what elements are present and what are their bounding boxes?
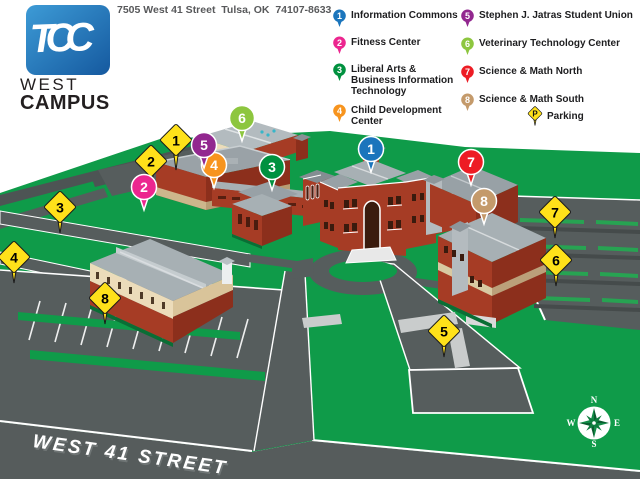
svg-text:P: P xyxy=(532,110,538,119)
svg-text:1: 1 xyxy=(367,141,375,157)
svg-text:6: 6 xyxy=(238,110,246,126)
campus-map-page: WEST 41 STREET WEST 41 STREET N E xyxy=(0,0,640,479)
legend-pin-2-icon: 2 xyxy=(332,36,347,56)
svg-text:4: 4 xyxy=(337,106,342,116)
svg-text:7: 7 xyxy=(467,154,475,170)
tcc-logo: TCC xyxy=(26,5,110,75)
legend-label: Information Commons xyxy=(351,9,462,21)
compass-e: E xyxy=(614,418,620,428)
legend-item-information-commons: 1 Information Commons xyxy=(332,9,462,29)
legend-label: Veterinary Technology Center xyxy=(479,37,638,49)
legend-pin-1-icon: 1 xyxy=(332,9,347,29)
legend-label: Science & Math South xyxy=(479,93,638,105)
legend-column-2: 5 Stephen J. Jatras Student Union 6 Vete… xyxy=(460,9,638,121)
legend-label: Liberal Arts & Business Information Tech… xyxy=(351,63,462,97)
svg-text:1: 1 xyxy=(337,11,342,21)
legend-item-child-development: 4 Child Development Center xyxy=(332,104,462,127)
compass-n: N xyxy=(591,395,598,405)
svg-text:7: 7 xyxy=(551,205,559,221)
svg-text:2: 2 xyxy=(337,38,342,48)
svg-text:8: 8 xyxy=(465,95,470,105)
campus-title: WEST CAMPUS xyxy=(20,76,110,113)
legend-item-veterinary-technology: 6 Veterinary Technology Center xyxy=(460,37,638,57)
campus-address: 7505 West 41 Street Tulsa, OK 74107-8633 xyxy=(117,4,331,16)
legend-label: Parking xyxy=(547,111,584,122)
legend-label: Fitness Center xyxy=(351,36,462,48)
svg-text:4: 4 xyxy=(10,250,18,266)
svg-text:7: 7 xyxy=(465,67,470,77)
legend-parking-icon: P xyxy=(527,106,543,126)
legend-item-parking: P Parking xyxy=(527,106,584,126)
svg-text:8: 8 xyxy=(480,193,488,209)
svg-text:6: 6 xyxy=(552,253,560,269)
svg-text:5: 5 xyxy=(465,11,470,21)
svg-text:2: 2 xyxy=(147,154,155,170)
legend-pin-4-icon: 4 xyxy=(332,104,347,124)
campus-word-campus: CAMPUS xyxy=(20,93,110,113)
legend-label: Stephen J. Jatras Student Union xyxy=(479,9,638,21)
svg-text:8: 8 xyxy=(101,291,109,307)
compass-s: S xyxy=(591,439,596,449)
legend-pin-3-icon: 3 xyxy=(332,63,347,83)
svg-text:6: 6 xyxy=(465,39,470,49)
legend-item-liberal-arts: 3 Liberal Arts & Business Information Te… xyxy=(332,63,462,97)
svg-text:5: 5 xyxy=(440,324,448,340)
campus-word-west: WEST xyxy=(20,76,110,93)
legend-item-fitness-center: 2 Fitness Center xyxy=(332,36,462,56)
svg-text:3: 3 xyxy=(268,159,276,175)
legend-pin-5-icon: 5 xyxy=(460,9,475,29)
compass-w: W xyxy=(567,418,576,428)
legend-label: Child Development Center xyxy=(351,104,462,127)
legend-column-1: 1 Information Commons 2 Fitness Center 3… xyxy=(332,9,462,134)
legend-label: Science & Math North xyxy=(479,65,638,77)
legend-item-student-union: 5 Stephen J. Jatras Student Union xyxy=(460,9,638,29)
svg-text:1: 1 xyxy=(172,133,180,149)
legend-item-science-math-north: 7 Science & Math North xyxy=(460,65,638,85)
legend-pin-7-icon: 7 xyxy=(460,65,475,85)
legend-pin-6-icon: 6 xyxy=(460,37,475,57)
svg-text:5: 5 xyxy=(200,137,208,153)
svg-text:3: 3 xyxy=(337,65,342,75)
south-parking-lot xyxy=(409,368,533,413)
svg-text:3: 3 xyxy=(56,200,64,216)
legend-pin-8-icon: 8 xyxy=(460,93,475,113)
svg-text:2: 2 xyxy=(140,179,148,195)
svg-text:4: 4 xyxy=(210,157,218,173)
